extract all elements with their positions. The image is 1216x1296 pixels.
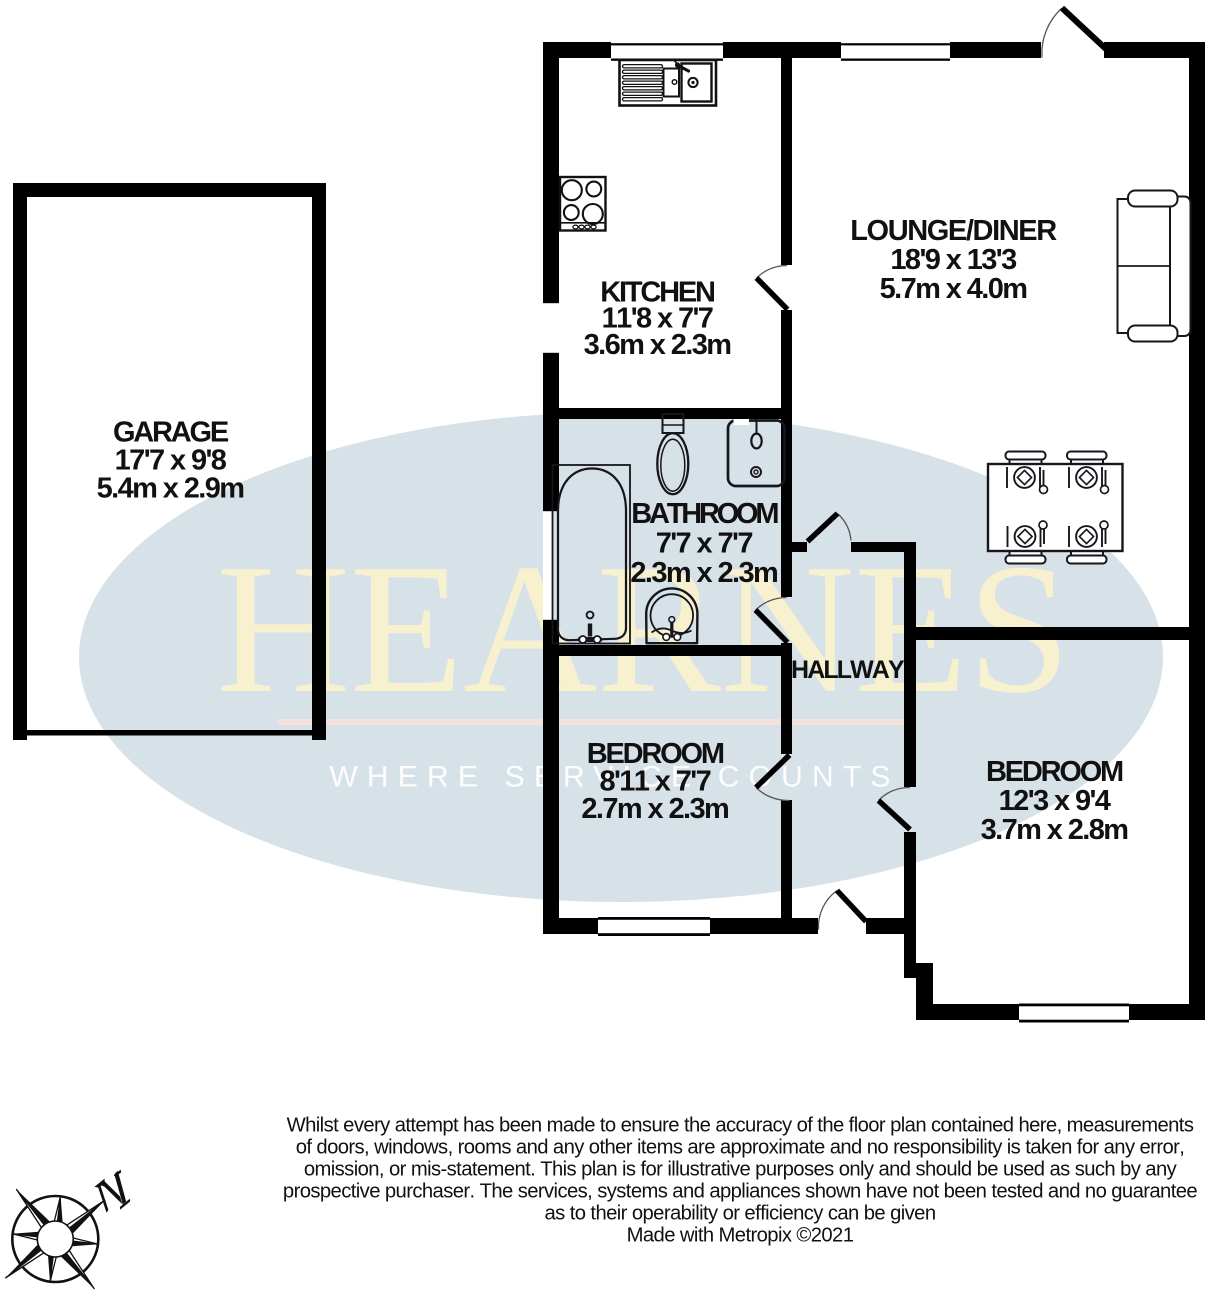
svg-text:of doors, windows, rooms and a: of doors, windows, rooms and any other i… <box>296 1137 1185 1159</box>
svg-text:BATHROOM: BATHROOM <box>631 498 778 530</box>
svg-text:2.7m x 2.3m: 2.7m x 2.3m <box>581 793 728 825</box>
svg-text:12'3 x 9'4: 12'3 x 9'4 <box>999 785 1111 817</box>
svg-text:BEDROOM: BEDROOM <box>986 756 1123 788</box>
svg-text:3.7m x 2.8m: 3.7m x 2.8m <box>981 814 1128 846</box>
svg-text:prospective purchaser. The ser: prospective purchaser. The services, sys… <box>283 1181 1198 1203</box>
svg-text:5.7m x 4.0m: 5.7m x 4.0m <box>880 273 1027 305</box>
svg-text:Made with Metropix ©2021: Made with Metropix ©2021 <box>627 1225 854 1247</box>
svg-text:7'7 x 7'7: 7'7 x 7'7 <box>656 528 753 560</box>
svg-text:as to their operability or eff: as to their operability or efficiency ca… <box>545 1203 936 1225</box>
svg-text:HALLWAY: HALLWAY <box>791 656 905 684</box>
svg-text:Whilst every attempt has been: Whilst every attempt has been made to en… <box>287 1115 1194 1137</box>
svg-text:LOUNGE/DINER: LOUNGE/DINER <box>850 215 1057 247</box>
svg-text:18'9 x 13'3: 18'9 x 13'3 <box>890 244 1017 276</box>
svg-text:omission, or mis-statement. Th: omission, or mis-statement. This plan is… <box>304 1159 1178 1181</box>
svg-text:5.4m x 2.9m: 5.4m x 2.9m <box>97 473 244 505</box>
svg-text:2.3m x 2.3m: 2.3m x 2.3m <box>630 557 777 589</box>
svg-text:3.6m x 2.3m: 3.6m x 2.3m <box>584 329 731 361</box>
